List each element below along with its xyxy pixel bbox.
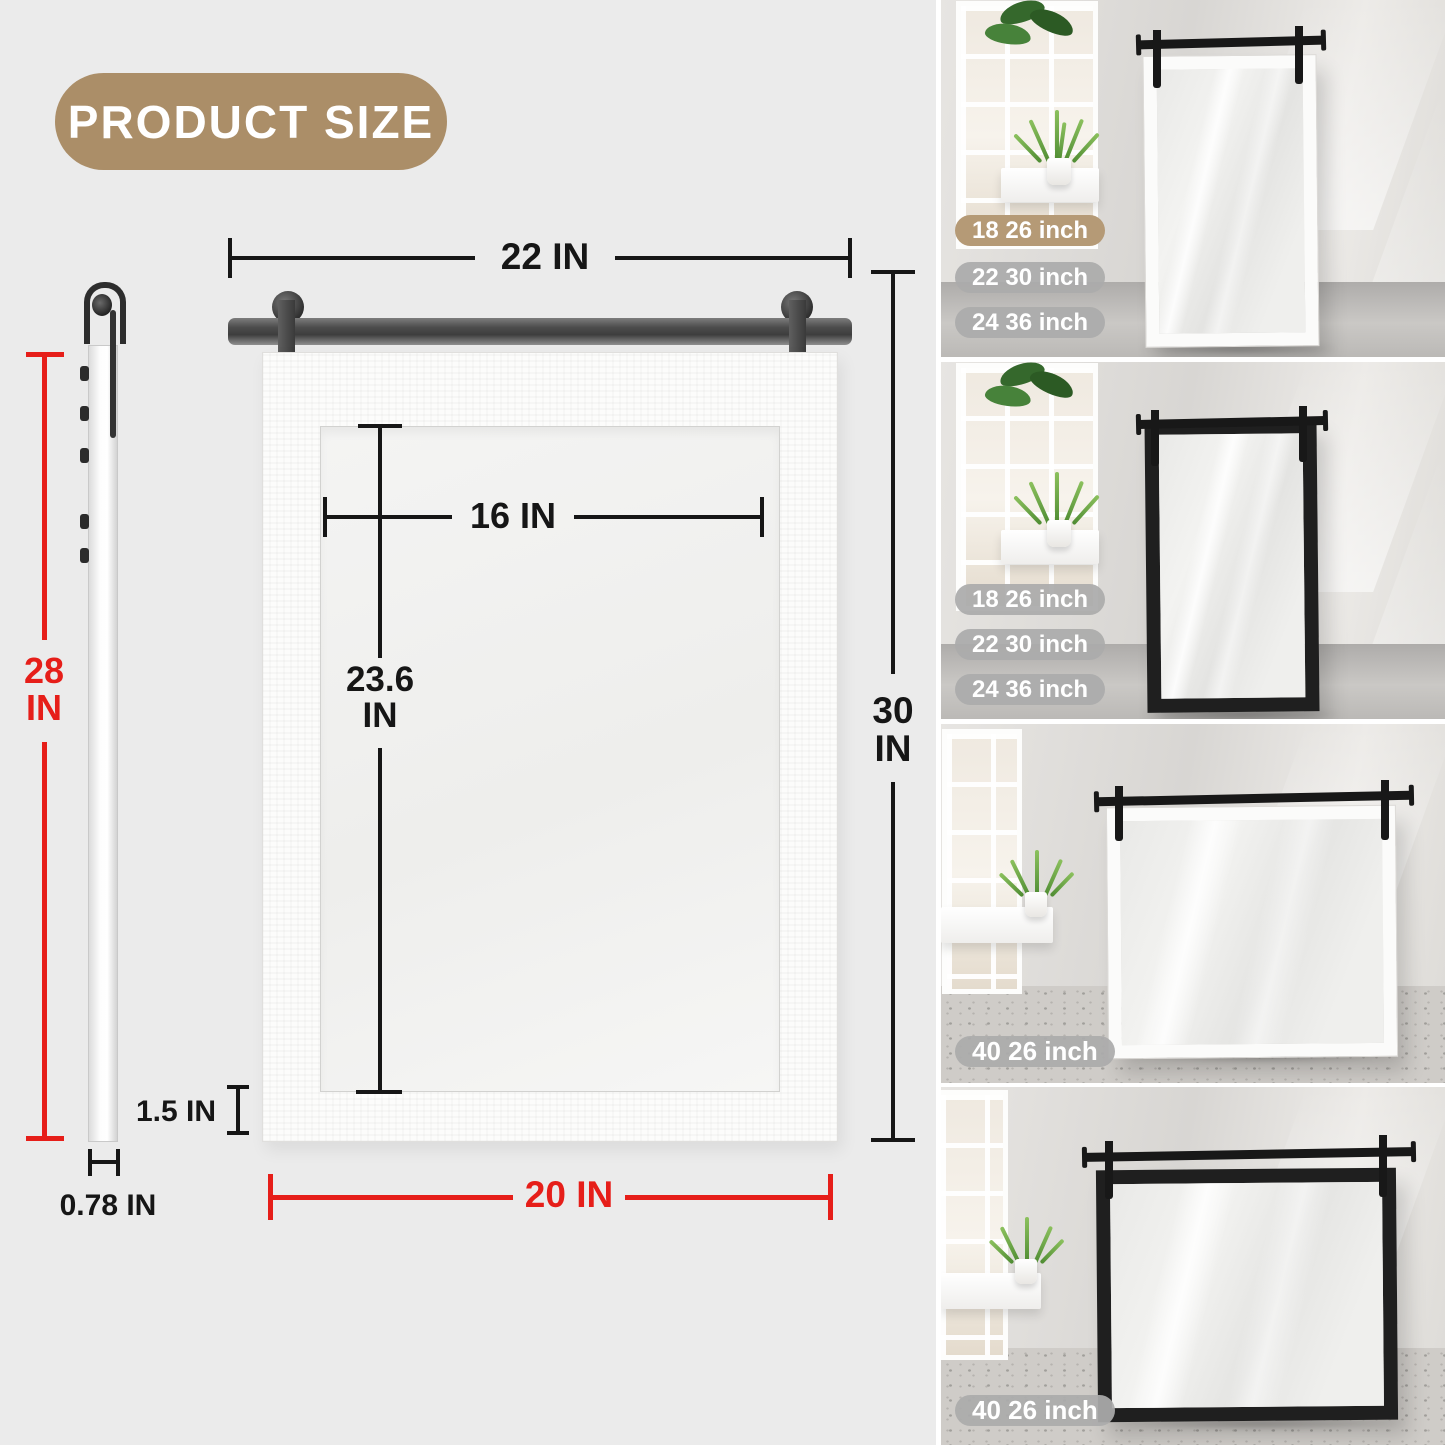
dim-20-label: 20 IN bbox=[513, 1176, 625, 1214]
dim-22-tick-right bbox=[848, 238, 852, 278]
photo-white-portrait: 18 26 inch 22 30 inch 24 36 inch bbox=[941, 0, 1445, 357]
side-bolt-nub bbox=[80, 406, 89, 421]
dim-16-tick-right bbox=[760, 497, 764, 537]
dim-15-line bbox=[236, 1085, 240, 1135]
mirror-glass bbox=[1157, 68, 1306, 334]
size-badge: 24 36 inch bbox=[955, 674, 1105, 705]
side-bolt-nub bbox=[80, 514, 89, 529]
dim-30-unit: IN bbox=[856, 730, 930, 768]
dim-15-label: 1.5 IN bbox=[116, 1096, 216, 1127]
potted-plant bbox=[1003, 1213, 1053, 1263]
size-badge: 22 30 inch bbox=[955, 629, 1105, 660]
dim-078-line bbox=[88, 1160, 120, 1164]
dim-236-unit: IN bbox=[332, 698, 428, 734]
photo-white-landscape: 40 26 inch bbox=[941, 724, 1445, 1083]
dim-22-line bbox=[615, 256, 848, 260]
hanger-strap bbox=[1381, 780, 1389, 840]
dim-22-line bbox=[232, 256, 475, 260]
size-badge: 22 30 inch bbox=[955, 262, 1105, 293]
plant-pot bbox=[1047, 520, 1071, 547]
dim-30-line bbox=[891, 274, 895, 674]
hanger-strap bbox=[1299, 406, 1307, 462]
dim-28-label: 28 IN bbox=[4, 652, 84, 727]
dim-15-tick-bottom bbox=[227, 1131, 249, 1135]
hanger-strap bbox=[1295, 26, 1303, 84]
plant-blade bbox=[1055, 472, 1059, 524]
glass-streak bbox=[1221, 819, 1345, 1045]
side-roller-wheel bbox=[92, 294, 112, 316]
dim-30-tick-bottom bbox=[871, 1138, 915, 1142]
dim-236-label: 23.6 IN bbox=[332, 662, 428, 735]
dim-16-line bbox=[327, 515, 452, 519]
hanger-strap bbox=[1379, 1135, 1387, 1197]
plant-blade bbox=[1035, 850, 1039, 896]
diagram-panel: PRODUCT SIZE 28 IN 0.78 IN bbox=[0, 0, 936, 1445]
size-badge: 18 26 inch bbox=[955, 215, 1105, 246]
dim-30-value: 30 bbox=[856, 692, 930, 730]
potted-plant bbox=[1013, 846, 1063, 896]
hanger-strap bbox=[1151, 410, 1159, 466]
dim-20-tick-right bbox=[828, 1174, 833, 1220]
product-mirror bbox=[1144, 419, 1319, 713]
dim-28-tick-bottom bbox=[26, 1136, 64, 1141]
dim-078-label: 0.78 IN bbox=[48, 1190, 168, 1221]
dim-236-value: 23.6 bbox=[332, 662, 428, 698]
dim-236-line bbox=[378, 748, 382, 1090]
dim-28-value: 28 bbox=[4, 652, 84, 689]
window bbox=[947, 734, 1017, 989]
side-hanger-strap bbox=[110, 310, 116, 438]
barn-door-rail bbox=[228, 318, 852, 345]
page-title: PRODUCT SIZE bbox=[55, 73, 447, 170]
hanger-strap bbox=[1115, 786, 1123, 841]
dim-20-line bbox=[625, 1195, 828, 1200]
size-badge: 24 36 inch bbox=[955, 307, 1105, 338]
side-bolt-nub bbox=[80, 366, 89, 381]
mirror-glass bbox=[1120, 819, 1384, 1045]
mirror-side-profile bbox=[88, 345, 118, 1142]
photo-black-landscape: 40 26 inch bbox=[941, 1087, 1445, 1445]
product-size-infographic: PRODUCT SIZE 28 IN 0.78 IN bbox=[0, 0, 1445, 1445]
dim-236-line bbox=[378, 428, 382, 658]
dim-16-line bbox=[574, 515, 760, 519]
glass-streak bbox=[1217, 1182, 1343, 1408]
mirror-glass bbox=[1159, 433, 1306, 698]
dim-30-line bbox=[891, 782, 895, 1138]
potted-plant bbox=[1027, 468, 1093, 524]
mirror-glass bbox=[1110, 1182, 1384, 1408]
dim-16-label: 16 IN bbox=[452, 497, 574, 534]
plant-pot bbox=[1015, 1259, 1037, 1284]
photo-black-portrait: 18 26 inch 22 30 inch 24 36 inch bbox=[941, 362, 1445, 719]
dim-28-unit: IN bbox=[4, 689, 84, 726]
size-badge: 18 26 inch bbox=[955, 584, 1105, 615]
product-mirror bbox=[1107, 806, 1397, 1059]
hanger-strap bbox=[1105, 1141, 1113, 1199]
side-bolt-nub bbox=[80, 448, 89, 463]
hanger-strap bbox=[1153, 30, 1161, 88]
product-mirror bbox=[1096, 1168, 1398, 1423]
size-badge: 40 26 inch bbox=[955, 1395, 1115, 1426]
dim-30-label: 30 IN bbox=[856, 692, 930, 769]
dim-28-line bbox=[42, 352, 47, 640]
size-badge: 40 26 inch bbox=[955, 1036, 1115, 1067]
potted-plant bbox=[1027, 106, 1093, 162]
plant-pot bbox=[1047, 158, 1071, 185]
plant-blade bbox=[1025, 1217, 1029, 1263]
dim-236-tick-bottom bbox=[356, 1090, 402, 1094]
dim-28-line bbox=[42, 742, 47, 1140]
product-mirror bbox=[1143, 55, 1318, 347]
plant-pot bbox=[1025, 892, 1047, 917]
side-bolt-nub bbox=[80, 548, 89, 563]
dim-22-label: 22 IN bbox=[475, 238, 615, 276]
window bbox=[941, 1095, 1003, 1355]
dim-20-line bbox=[273, 1195, 513, 1200]
